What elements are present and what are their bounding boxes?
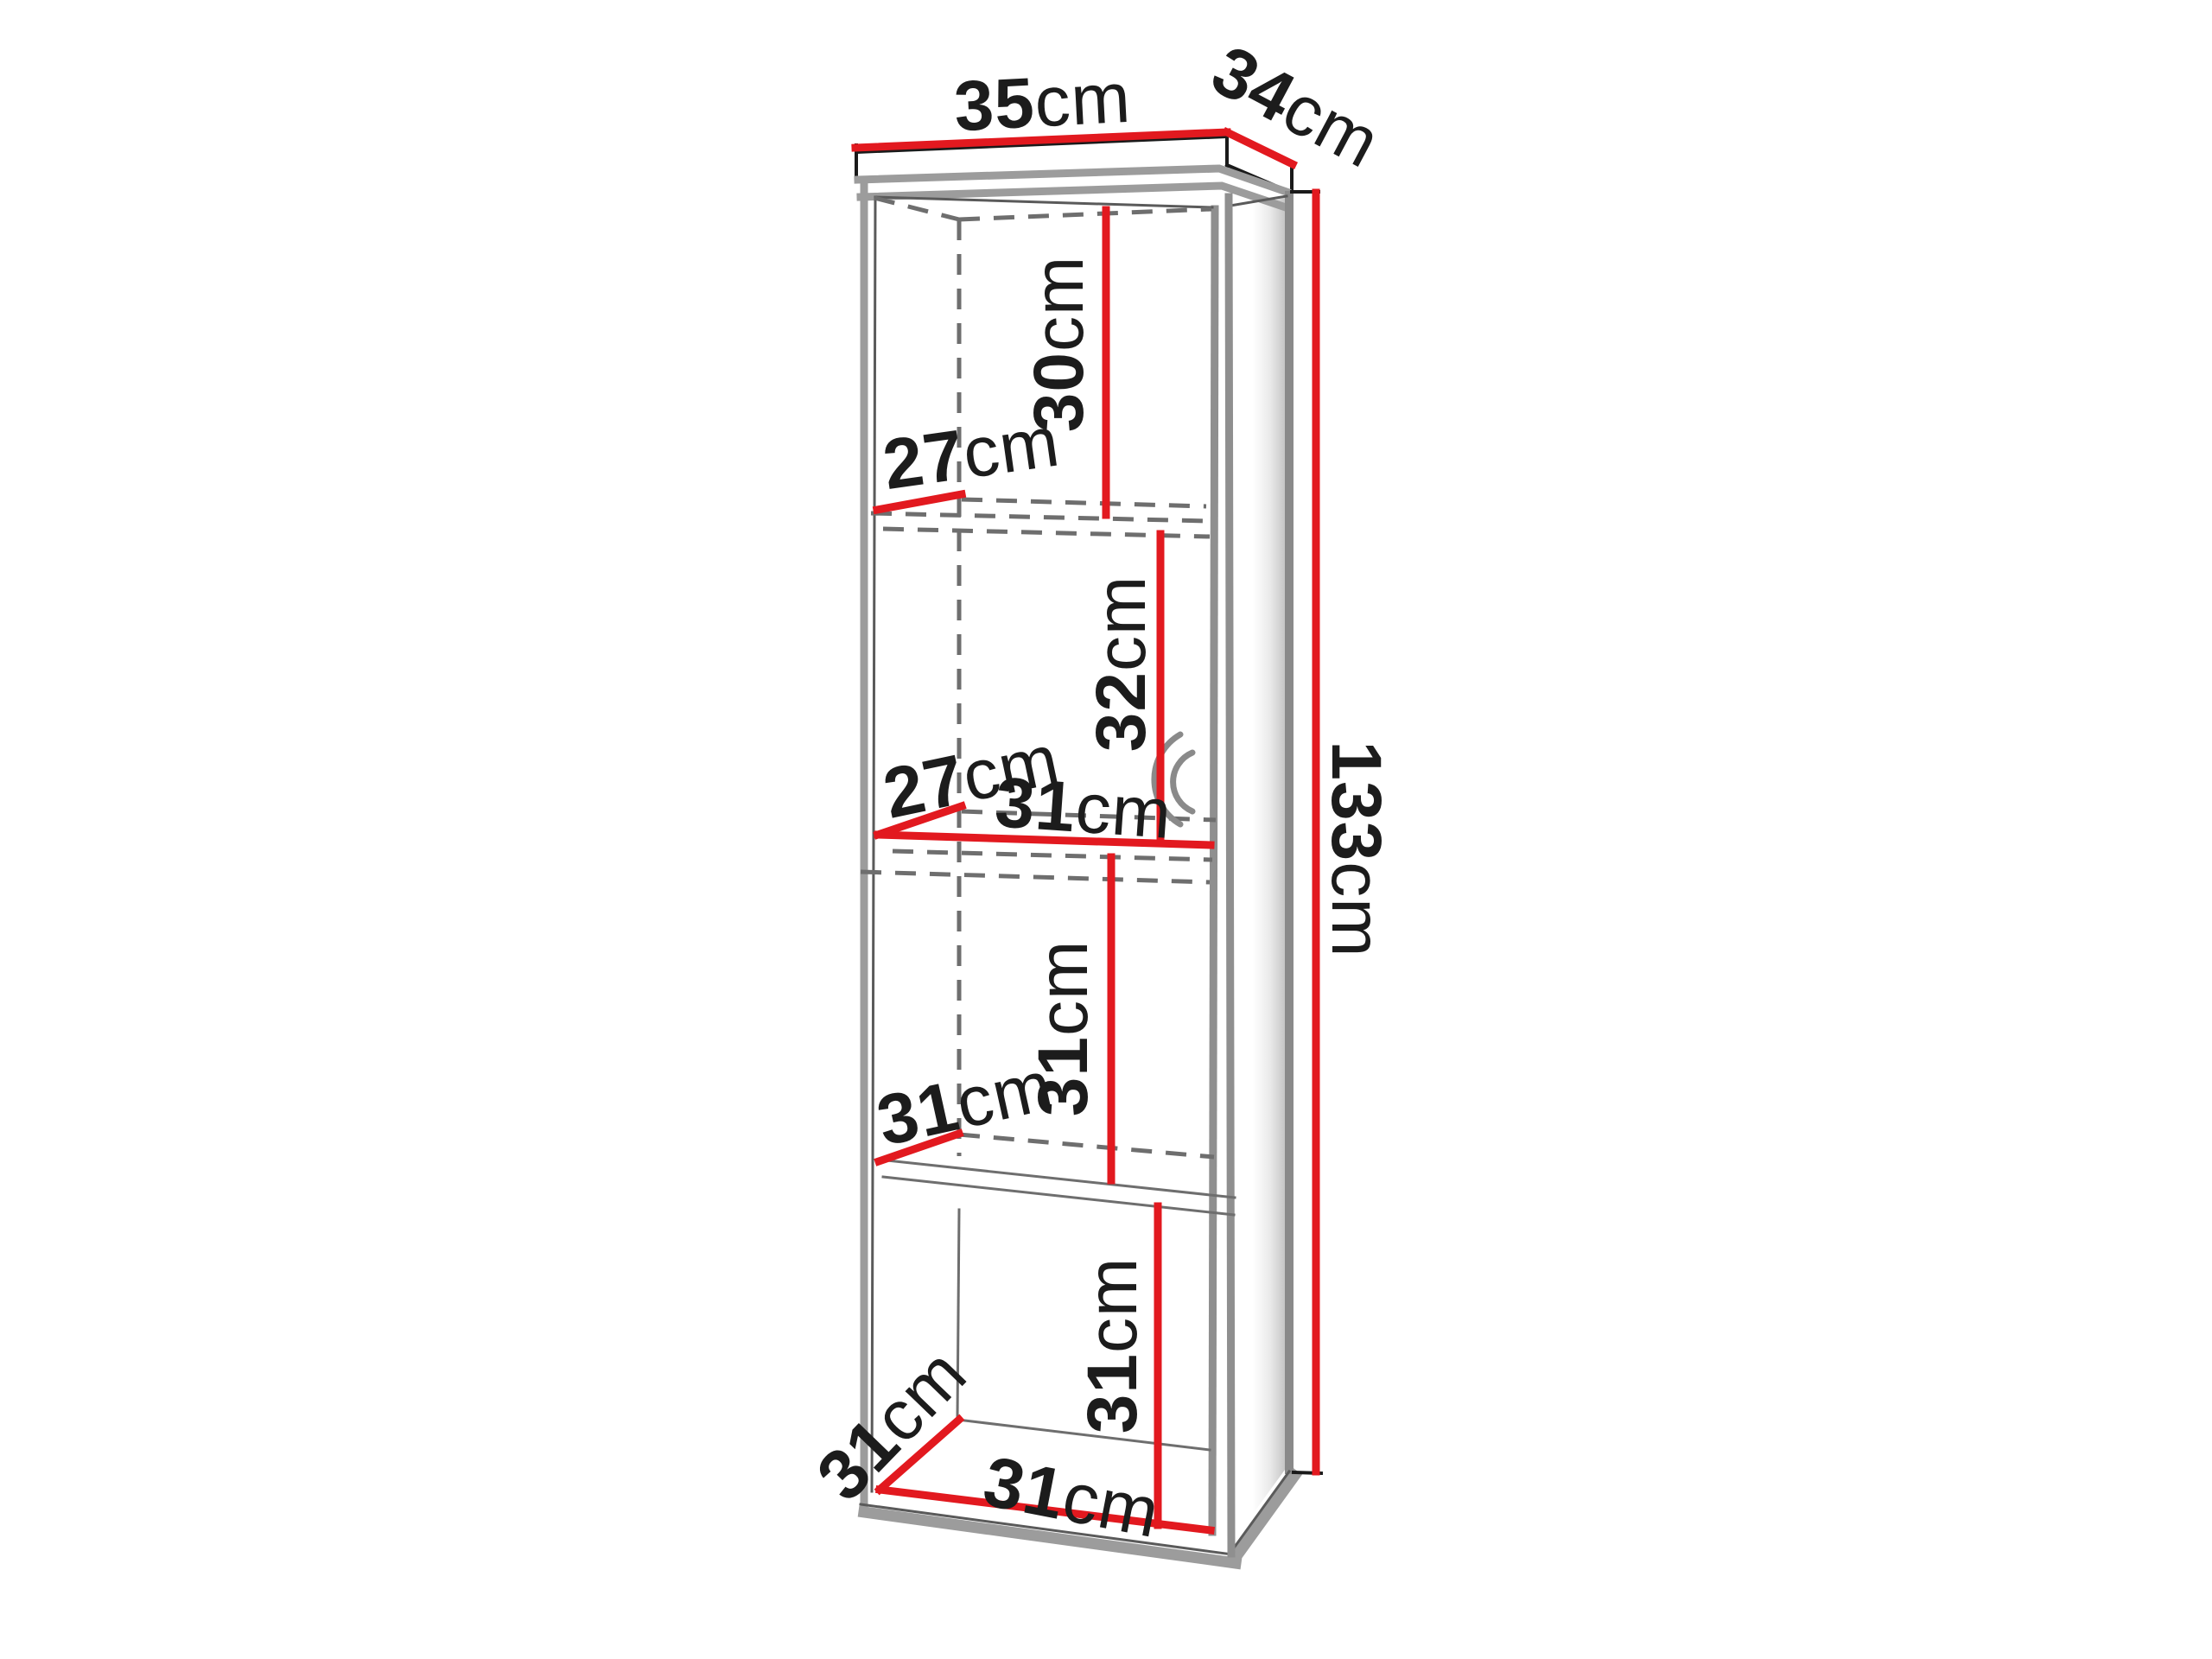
interior-left-edge [872,197,875,1491]
shelf2-hidden-bottom [861,872,1210,882]
diagram-page: 35cm 34cm 133cm 30cm 27cm 32cm 27cm 31cm… [0,0,2212,1659]
hidden-top-back-edge [959,209,1211,219]
shelf1-hidden-back [962,499,1206,506]
dim-label-total-height: 133cm [1317,741,1395,957]
right-stile [1212,197,1231,1554]
shelf1-hidden-front [871,513,1210,521]
dim-label-comp3-depth: 31cm [870,1046,1059,1161]
dim-label-top-width: 35cm [952,59,1133,147]
shelf3-band [879,1160,1235,1215]
shelf3-hidden-back [959,1135,1214,1157]
dim-label-comp2-height: 32cm [1082,575,1160,753]
dim-label-comp1-depth: 27cm [879,402,1065,505]
interior-top-edge [875,197,1212,207]
hidden-top-depth-edge [874,198,959,219]
dim-label-comp4-height: 31cm [1073,1257,1152,1434]
dimension-labels: 35cm 34cm 133cm 30cm 27cm 32cm 27cm 31cm… [802,31,1395,1554]
side-panel-shade [1253,198,1285,1514]
cabinet-dimension-diagram: 35cm 34cm 133cm 30cm 27cm 32cm 27cm 31cm… [0,0,2212,1659]
dim-label-comp2-width: 31cm [993,763,1174,854]
